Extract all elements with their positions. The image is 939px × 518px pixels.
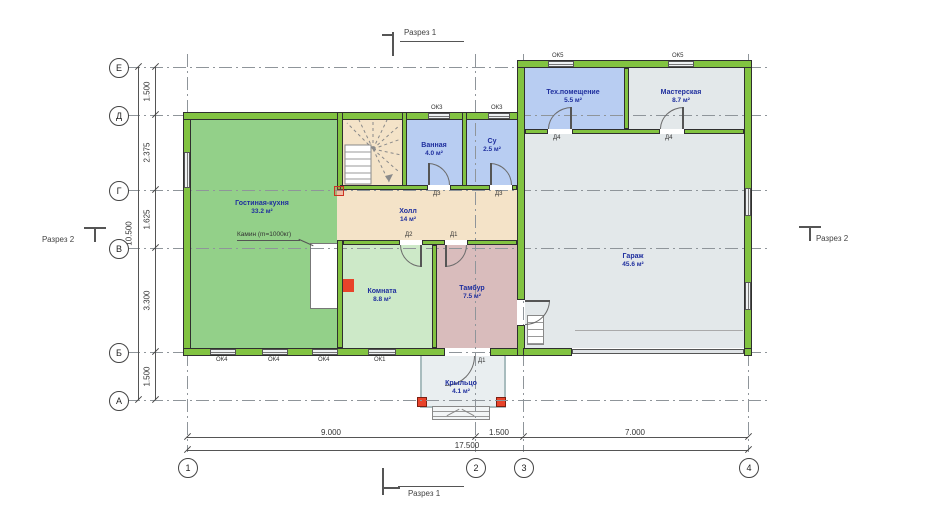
fireplace-leader-line	[237, 240, 300, 241]
wall-stairs-east	[402, 112, 407, 190]
section1-bottom-label: Разрез 1	[408, 489, 440, 498]
grid-bubble-label: Б	[116, 348, 122, 358]
window-label-ok3-wc: ОК3	[491, 105, 503, 111]
wall-hall-south-3	[467, 240, 517, 245]
fireplace-body	[310, 243, 338, 309]
fireplace-callout: Камин (m=1000кг)	[237, 231, 291, 238]
room-area: 14 м²	[399, 216, 417, 224]
door-garage-leaf	[525, 300, 550, 302]
label-bedroom: Комната 8.8 м²	[367, 287, 396, 305]
door-label-d1-entry: Д1	[478, 358, 485, 364]
grid-bubble-row-B: Б	[109, 343, 129, 363]
room-area: 4.0 м²	[421, 150, 446, 158]
window-tech-north	[548, 61, 574, 67]
grid-bubble-label: 4	[746, 463, 751, 473]
label-hall: Холл 14 м²	[399, 207, 417, 225]
door-label-d2-bedroom: Д2	[405, 232, 412, 238]
section1-bottom-hline	[398, 486, 464, 487]
wall-garage-north-2	[572, 129, 660, 134]
label-tech: Тех.помещение 5.5 м²	[546, 88, 599, 106]
window-label-ok4-1: ОК4	[216, 357, 228, 363]
room-name: Су	[483, 137, 501, 146]
section1-top-tick	[382, 34, 393, 36]
wall-tech-workshop-divider	[624, 68, 629, 129]
room-area: 2.5 м²	[483, 146, 501, 154]
window-label-ok4-2: ОК4	[268, 357, 280, 363]
grid-bubble-row-E: Е	[109, 58, 129, 78]
room-area: 5.5 м²	[546, 97, 599, 105]
dim-left-seg-3: 1.625	[143, 200, 152, 240]
dim-bottom-total-line	[187, 450, 748, 451]
door-workshop-leaf	[682, 107, 684, 129]
room-name: Тех.помещение	[546, 88, 599, 97]
window-label-ok5-tech: ОК5	[552, 53, 564, 59]
room-name: Мастерская	[661, 88, 702, 97]
door-bedroom-leaf	[420, 245, 422, 267]
room-name: Крыльцо	[445, 379, 477, 388]
grid-bubble-label: В	[116, 244, 122, 254]
window-living-south-1	[210, 349, 236, 355]
grid-bubble-col-4: 4	[739, 458, 759, 478]
wall-right-wing-south-1	[523, 348, 572, 356]
room-hall	[337, 190, 517, 240]
garage-gate-track	[575, 330, 743, 331]
door-label-d3-bath: Д3	[433, 191, 440, 197]
room-name: Комната	[367, 287, 396, 296]
label-wc: Су 2.5 м²	[483, 137, 501, 155]
wall-bath-south-1	[340, 185, 428, 190]
window-label-ok5-workshop: ОК5	[672, 53, 684, 59]
wall-left-wing-top	[183, 112, 523, 120]
grid-bubble-row-V: В	[109, 239, 129, 259]
window-label-ok4-3: ОК4	[318, 357, 330, 363]
dim-bottom-seg-1: 9.000	[301, 428, 361, 437]
grid-bubble-label: 2	[473, 463, 478, 473]
room-area: 7.5 м²	[459, 293, 484, 301]
window-living-west	[184, 152, 190, 188]
porch-post-right	[496, 397, 506, 407]
section1-top-label: Разрез 1	[404, 28, 436, 37]
section1-bottom-vline	[382, 468, 384, 495]
label-bathroom: Ванная 4.0 м²	[421, 141, 446, 159]
wall-bedroom-tambur-divider	[432, 245, 437, 348]
section2-left-label: Разрез 2	[42, 235, 74, 244]
grid-bubble-col-1: 1	[178, 458, 198, 478]
dim-left-seg-2: 2.375	[143, 133, 152, 173]
floor-plan-canvas: Гостиная-кухня 33.2 м² Ванная 4.0 м² Су …	[0, 0, 939, 518]
porch-post-left	[417, 397, 427, 407]
window-label-ok3-bath: ОК3	[431, 105, 443, 111]
room-name: Ванная	[421, 141, 446, 150]
door-label-d4-tech: Д4	[553, 135, 560, 141]
dim-left-seg-4: 3.300	[143, 281, 152, 321]
grid-bubble-label: Д	[116, 111, 122, 121]
dim-bottom-seg-2: 1.500	[469, 428, 529, 437]
window-wc-north	[488, 113, 510, 119]
grid-bubble-label: 3	[521, 463, 526, 473]
dim-left-seg-1: 1.500	[143, 72, 152, 112]
label-workshop: Мастерская 8.7 м²	[661, 88, 702, 106]
window-garage-east-2	[745, 282, 751, 310]
room-area: 33.2 м²	[235, 208, 289, 216]
grid-bubble-col-2: 2	[466, 458, 486, 478]
level-mark	[334, 186, 344, 196]
room-name: Гостиная-кухня	[235, 199, 289, 208]
grid-bubble-row-A: А	[109, 391, 129, 411]
dim-bottom-seg-line	[187, 437, 748, 438]
door-label-d4-workshop: Д4	[665, 135, 672, 141]
section1-bottom-tick	[384, 487, 400, 489]
window-bedroom-south	[368, 349, 396, 355]
grid-row-A-line	[127, 400, 768, 401]
door-tambur-leaf	[445, 245, 447, 267]
section2-right-label: Разрез 2	[816, 234, 848, 243]
room-area: 4.1 м²	[445, 388, 477, 396]
door-label-d1-tambur: Д1	[450, 232, 457, 238]
window-living-south-3	[312, 349, 338, 355]
room-area: 8.7 м²	[661, 97, 702, 105]
grid-bubble-col-3: 3	[514, 458, 534, 478]
section2-left-vline	[94, 229, 96, 242]
dim-left-seg-5: 1.500	[143, 357, 152, 397]
dim-bottom-total: 17.500	[437, 441, 497, 450]
grid-bubble-row-G: Г	[109, 181, 129, 201]
room-name: Гараж	[622, 252, 643, 261]
room-garage	[525, 134, 744, 348]
wall-hall-south-1	[343, 240, 400, 245]
wall-right-wing-south-2	[744, 348, 752, 356]
section1-top-hline	[400, 41, 464, 42]
wall-shared-west-upper	[517, 60, 525, 300]
stairs-icon	[343, 119, 402, 185]
door-wc-leaf	[490, 163, 492, 185]
wall-garage-north-3	[684, 129, 744, 134]
garage-gate	[572, 349, 744, 354]
label-porch: Крыльцо 4.1 м²	[445, 379, 477, 397]
room-name: Тамбур	[459, 284, 484, 293]
grid-row-G-line	[127, 190, 768, 191]
grid-bubble-label: А	[116, 396, 122, 406]
room-area: 8.8 м²	[367, 296, 396, 304]
wall-garage-north-1	[525, 129, 548, 134]
section2-right-vline	[809, 228, 811, 241]
label-living: Гостиная-кухня 33.2 м²	[235, 199, 289, 217]
door-bathroom-leaf	[428, 163, 430, 185]
window-garage-east-1	[745, 188, 751, 216]
window-bath-north	[428, 113, 450, 119]
window-label-ok1: ОК1	[374, 357, 386, 363]
room-name: Холл	[399, 207, 417, 216]
window-living-south-2	[262, 349, 288, 355]
wall-bath-wc-divider	[462, 112, 467, 190]
grid-bubble-label: Е	[116, 63, 122, 73]
dim-bottom-seg-3: 7.000	[605, 428, 665, 437]
label-tambur: Тамбур 7.5 м²	[459, 284, 484, 302]
wall-stairs-west	[337, 112, 343, 190]
grid-bubble-label: 1	[185, 463, 190, 473]
window-workshop-north	[668, 61, 694, 67]
wall-bath-south-2	[450, 185, 490, 190]
door-label-d3-wc: Д3	[495, 191, 502, 197]
room-area: 45.6 м²	[622, 261, 643, 269]
grid-bubble-label: Г	[117, 186, 122, 196]
grid-bubble-row-D: Д	[109, 106, 129, 126]
wall-bedroom-west	[337, 240, 343, 348]
wall-bath-south-3	[512, 185, 517, 190]
door-tech-leaf	[570, 107, 572, 129]
dim-left-total-line	[138, 67, 139, 400]
label-garage: Гараж 45.6 м²	[622, 252, 643, 270]
